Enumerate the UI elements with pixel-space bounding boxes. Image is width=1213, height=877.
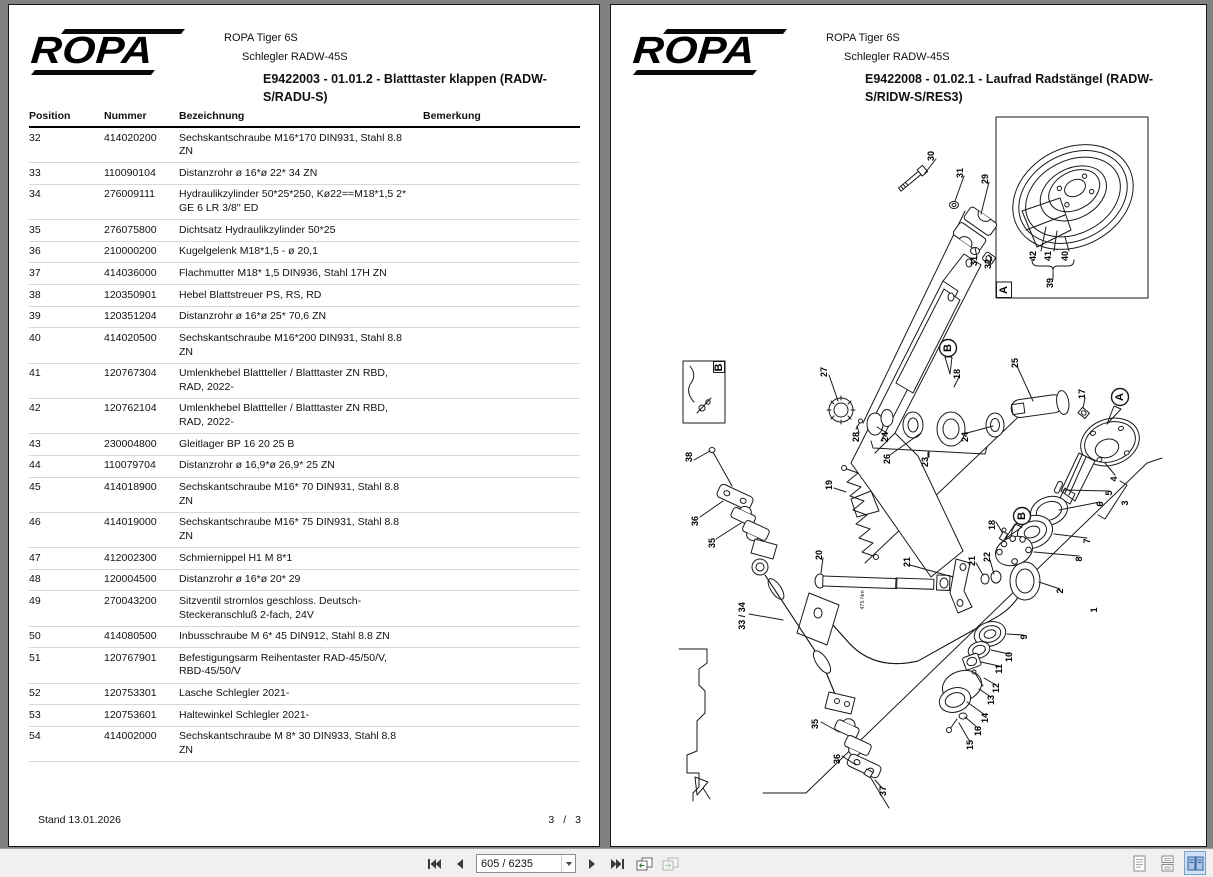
cell-bemerkung [423, 630, 580, 644]
cell-bemerkung [423, 595, 580, 622]
single-page-layout-button[interactable] [1128, 851, 1150, 875]
cell-nummer: 120004500 [104, 573, 179, 587]
table-row: 41 120767304 Umlenkhebel Blattteller / B… [29, 364, 580, 399]
page-current: 3 [548, 814, 554, 826]
cell-bezeichnung: Kugelgelenk M18*1,5 - ø 20,1 [179, 245, 423, 259]
cell-bemerkung [423, 132, 580, 159]
cell-bemerkung [423, 552, 580, 566]
cell-bezeichnung: Gleitlager BP 16 20 25 B [179, 438, 423, 452]
cell-bemerkung [423, 459, 580, 473]
part-callout: 18 [987, 520, 997, 530]
part-callout: 12 [991, 683, 1001, 693]
cell-bemerkung [423, 516, 580, 543]
part-callout: A [998, 286, 1010, 294]
logo-wordmark: ROPA [30, 34, 210, 69]
part-callout: 40 [1060, 251, 1070, 261]
facing-pages-layout-button[interactable] [1184, 851, 1206, 875]
single-page-icon [1133, 855, 1146, 872]
col-bezeichnung: Bezeichnung [179, 110, 423, 122]
part-callout: 11 [994, 664, 1004, 674]
cell-position: 47 [29, 552, 104, 566]
machine-silhouette [679, 649, 710, 801]
spindle-group [991, 407, 1146, 570]
cell-position: 49 [29, 595, 104, 622]
table-row: 45 414018900 Sechskantschraube M16* 70 D… [29, 478, 580, 513]
viewer-toolbar: 605 / 6235 [0, 848, 1213, 877]
page-title: E9422003 - 01.01.2 - Blatttaster klappen… [263, 70, 583, 106]
cell-nummer: 276009111 [104, 188, 179, 215]
page-header: ROPA Tiger 6S Schlegler RADW-45S E942200… [224, 32, 583, 106]
part-callout: 42 [1028, 251, 1038, 261]
cell-position: 44 [29, 459, 104, 473]
cell-bezeichnung: Sechskantschraube M16* 75 DIN931, Stahl … [179, 516, 423, 543]
col-nummer: Nummer [104, 110, 179, 122]
part-callout: 20 [814, 550, 824, 560]
cell-bezeichnung: Befestigungsarm Reihentaster RAD-45/50/V… [179, 652, 423, 679]
cell-bemerkung [423, 310, 580, 324]
col-position: Position [29, 110, 104, 122]
part-callout: 5 [1104, 490, 1114, 495]
page-title: E9422008 - 01.02.1 - Laufrad Radstängel … [865, 70, 1190, 106]
logo-wordmark: ROPA [632, 34, 812, 69]
previous-view-icon [636, 857, 653, 871]
facing-pages-icon [1187, 855, 1204, 872]
cell-bezeichnung: Umlenkhebel Blattteller / Blatttaster ZN… [179, 367, 423, 394]
cell-bezeichnung: Lasche Schlegler 2021- [179, 687, 423, 701]
cell-position: 39 [29, 310, 104, 324]
part-callout: 35 [810, 719, 820, 729]
page-number-value[interactable]: 605 / 6235 [477, 858, 561, 870]
part-callout: 15 [965, 740, 975, 750]
part-callout: 2 [1055, 588, 1065, 593]
page-navigation: 605 / 6235 [424, 850, 680, 877]
cell-position: 35 [29, 224, 104, 238]
part-callout: 23 [920, 457, 930, 467]
part-callout: 6 [1095, 501, 1105, 506]
table-row: 47 412002300 Schmiernippel H1 M 8*1 [29, 548, 580, 570]
part-callout: 33 / 34 [737, 602, 747, 630]
cell-bezeichnung: Hydraulikzylinder 50*25*250, Kø22==M18*1… [179, 188, 423, 215]
col-bemerkung: Bemerkung [423, 110, 580, 122]
cell-nummer: 120753301 [104, 687, 179, 701]
page-number: 3/3 [539, 814, 581, 826]
part-callout: 38 [684, 452, 694, 462]
cell-position: 40 [29, 332, 104, 359]
part-callout: 27 [819, 367, 829, 377]
cell-nummer: 120762104 [104, 402, 179, 429]
part-callout: A [1114, 393, 1126, 401]
cell-nummer: 120351204 [104, 310, 179, 324]
parts-table: Position Nummer Bezeichnung Bemerkung 32… [29, 108, 580, 762]
part-callout: 36 [832, 754, 842, 764]
table-row: 34 276009111 Hydraulikzylinder 50*25*250… [29, 185, 580, 220]
wheel-inset [994, 117, 1151, 298]
last-page-icon [611, 858, 625, 870]
part-callout: 35 [707, 538, 717, 548]
page-separator: / [563, 814, 566, 826]
part-callout: 36 [690, 516, 700, 526]
previous-page-icon [455, 858, 465, 870]
table-row: 33 110090104 Distanzrohr ø 16*ø 22* 34 Z… [29, 163, 580, 185]
header-assembly: Schlegler RADW-45S [844, 51, 1190, 63]
table-row: 36 210000200 Kugelgelenk M18*1,5 - ø 20,… [29, 242, 580, 264]
part-callout: 19 [824, 480, 834, 490]
cell-bezeichnung: Inbusschraube M 6* 45 DIN912, Stahl 8.8 … [179, 630, 423, 644]
cell-bemerkung [423, 573, 580, 587]
cell-bemerkung [423, 438, 580, 452]
pdf-page-left: ROPA ROPA Tiger 6S Schlegler RADW-45S E9… [8, 4, 600, 847]
table-row: 40 414020500 Sechskantschraube M16*200 D… [29, 328, 580, 363]
logo-bar-bottom [633, 70, 757, 75]
cell-bemerkung [423, 332, 580, 359]
cell-position: 48 [29, 573, 104, 587]
next-view-button[interactable] [660, 854, 680, 874]
table-row: 35 276075800 Dichtsatz Hydraulikzylinder… [29, 220, 580, 242]
part-callout: 475 Nm [860, 590, 866, 610]
cell-position: 43 [29, 438, 104, 452]
next-view-icon [662, 857, 679, 871]
cell-position: 53 [29, 709, 104, 723]
cell-nummer: 414002000 [104, 730, 179, 757]
cell-bemerkung [423, 402, 580, 429]
page-total: 3 [575, 814, 581, 826]
cell-position: 52 [29, 687, 104, 701]
previous-page-button[interactable] [450, 854, 470, 874]
part-callout: 30 [926, 151, 936, 161]
part-callout: 10 [1004, 652, 1014, 662]
parts-table-header: Position Nummer Bezeichnung Bemerkung [29, 108, 580, 128]
cell-nummer: 120767304 [104, 367, 179, 394]
first-page-icon [427, 858, 441, 870]
cell-nummer: 110079704 [104, 459, 179, 473]
part-callout: 17 [1077, 389, 1087, 399]
continuous-layout-button[interactable] [1156, 851, 1178, 875]
part-callout: B [942, 344, 954, 352]
cell-bemerkung [423, 167, 580, 181]
cell-bemerkung [423, 367, 580, 394]
page-number-dropdown-button[interactable] [561, 855, 575, 872]
pdf-viewer: ROPA ROPA Tiger 6S Schlegler RADW-45S E9… [0, 0, 1213, 877]
part-callout: 24 [960, 432, 970, 442]
cell-bezeichnung: Distanzrohr ø 16*ø 25* 70,6 ZN [179, 310, 423, 324]
table-row: 44 110079704 Distanzrohr ø 16,9*ø 26,9* … [29, 456, 580, 478]
part-callout: 13 [986, 695, 996, 705]
cell-nummer: 414019000 [104, 516, 179, 543]
seal-cascade [936, 618, 1009, 733]
part-callout: 9 [1019, 634, 1029, 639]
page-layout-controls [1128, 851, 1206, 875]
cell-position: 54 [29, 730, 104, 757]
table-row: 53 120753601 Haltewinkel Schlegler 2021- [29, 705, 580, 727]
cell-bemerkung [423, 709, 580, 723]
page-header: ROPA Tiger 6S Schlegler RADW-45S E942200… [826, 32, 1190, 106]
header-model: ROPA Tiger 6S [224, 32, 583, 44]
table-row: 48 120004500 Distanzrohr ø 16*ø 20* 29 [29, 570, 580, 592]
last-page-button[interactable] [608, 854, 628, 874]
part-callout: B [1016, 512, 1028, 520]
page-number-combobox[interactable]: 605 / 6235 [476, 854, 576, 873]
table-row: 42 120762104 Umlenkhebel Blattteller / B… [29, 399, 580, 434]
previous-view-button[interactable] [634, 854, 654, 874]
part-callout: 28 [851, 432, 861, 442]
cell-bezeichnung: Distanzrohr ø 16*ø 20* 29 [179, 573, 423, 587]
cell-nummer: 210000200 [104, 245, 179, 259]
cell-nummer: 412002300 [104, 552, 179, 566]
cell-bezeichnung: Schmiernippel H1 M 8*1 [179, 552, 423, 566]
cell-bemerkung [423, 687, 580, 701]
cell-nummer: 120767901 [104, 652, 179, 679]
page-footer: Stand 13.01.2026 3/3 [38, 814, 581, 826]
cell-bezeichnung: Flachmutter M18* 1,5 DIN936, Stahl 17H Z… [179, 267, 423, 281]
cell-position: 51 [29, 652, 104, 679]
logo-bar-bottom [31, 70, 155, 75]
cell-bemerkung [423, 652, 580, 679]
cell-bemerkung [423, 188, 580, 215]
part-callout: 21 [967, 556, 977, 566]
header-model: ROPA Tiger 6S [826, 32, 1190, 44]
cell-bemerkung [423, 730, 580, 757]
cell-nummer: 270043200 [104, 595, 179, 622]
chevron-down-icon [566, 862, 572, 866]
pdf-page-right: ROPA ROPA Tiger 6S Schlegler RADW-45S E9… [610, 4, 1207, 847]
table-row: 51 120767901 Befestigungsarm Reihentaste… [29, 648, 580, 683]
part-callout: 14 [980, 713, 990, 723]
cell-bezeichnung: Sitzventil stromlos geschloss. Deutsch-S… [179, 595, 423, 622]
part-callout: 37 [878, 786, 888, 796]
part-callout: 31 [955, 168, 965, 178]
cell-bezeichnung: Dichtsatz Hydraulikzylinder 50*25 [179, 224, 423, 238]
part-callout: 16 [973, 726, 983, 736]
part-callout: 39 [1045, 278, 1055, 288]
table-row: 49 270043200 Sitzventil stromlos geschlo… [29, 591, 580, 626]
cell-nummer: 414080500 [104, 630, 179, 644]
cell-position: 38 [29, 289, 104, 303]
table-row: 43 230004800 Gleitlager BP 16 20 25 B [29, 434, 580, 456]
cell-bezeichnung: Sechskantschraube M 8* 30 DIN933, Stahl … [179, 730, 423, 757]
cell-bezeichnung: Sechskantschraube M16*170 DIN931, Stahl … [179, 132, 423, 159]
part-callout: 31 [969, 256, 979, 266]
cell-bezeichnung: Distanzrohr ø 16,9*ø 26,9* 25 ZN [179, 459, 423, 473]
cell-nummer: 414020500 [104, 332, 179, 359]
cell-bemerkung [423, 245, 580, 259]
cell-bemerkung [423, 267, 580, 281]
continuous-layout-icon [1161, 855, 1174, 872]
cell-position: 42 [29, 402, 104, 429]
cell-position: 33 [29, 167, 104, 181]
table-row: 32 414020200 Sechskantschraube M16*170 D… [29, 128, 580, 163]
part-callout: 26 [882, 454, 892, 464]
cell-nummer: 414020200 [104, 132, 179, 159]
table-row: 37 414036000 Flachmutter M18* 1,5 DIN936… [29, 263, 580, 285]
part-callout: 1 [1089, 607, 1099, 612]
ropa-logo: ROPA [633, 29, 791, 75]
table-row: 39 120351204 Distanzrohr ø 16*ø 25* 70,6… [29, 307, 580, 329]
part-callout: 8 [1074, 556, 1084, 561]
next-page-icon [587, 858, 597, 870]
cell-nummer: 230004800 [104, 438, 179, 452]
revision-date: Stand 13.01.2026 [38, 814, 121, 826]
table-row: 54 414002000 Sechskantschraube M 8* 30 D… [29, 727, 580, 762]
cell-nummer: 120350901 [104, 289, 179, 303]
part-callout: 25 [1010, 358, 1020, 368]
cell-bezeichnung: Sechskantschraube M16* 70 DIN931, Stahl … [179, 481, 423, 508]
cell-bemerkung [423, 289, 580, 303]
table-row: 38 120350901 Hebel Blattstreuer PS, RS, … [29, 285, 580, 307]
table-row: 46 414019000 Sechskantschraube M16* 75 D… [29, 513, 580, 548]
cell-bezeichnung: Hebel Blattstreuer PS, RS, RD [179, 289, 423, 303]
cell-nummer: 120753601 [104, 709, 179, 723]
part-callout: 4 [1109, 476, 1119, 481]
cell-nummer: 110090104 [104, 167, 179, 181]
cell-position: 36 [29, 245, 104, 259]
part-callout: 18 [952, 369, 962, 379]
cell-position: 34 [29, 188, 104, 215]
cell-bezeichnung: Haltewinkel Schlegler 2021- [179, 709, 423, 723]
part-callout: 41 [1043, 251, 1053, 261]
cell-bezeichnung: Umlenkhebel Blattteller / Blatttaster ZN… [179, 402, 423, 429]
cell-position: 32 [29, 132, 104, 159]
cell-bezeichnung: Distanzrohr ø 16*ø 22* 34 ZN [179, 167, 423, 181]
part-callout: B [713, 363, 725, 371]
part-callout: 22 [982, 552, 992, 562]
cell-nummer: 414036000 [104, 267, 179, 281]
first-page-button[interactable] [424, 854, 444, 874]
cell-position: 41 [29, 367, 104, 394]
cell-bezeichnung: Sechskantschraube M16*200 DIN931, Stahl … [179, 332, 423, 359]
parts-table-body: 32 414020200 Sechskantschraube M16*170 D… [29, 128, 580, 762]
part-callout: 21 [902, 557, 912, 567]
cell-position: 37 [29, 267, 104, 281]
part-callout: 7 [1082, 538, 1092, 543]
part-callout: 32 [983, 259, 993, 269]
cell-bemerkung [423, 481, 580, 508]
table-row: 50 414080500 Inbusschraube M 6* 45 DIN91… [29, 627, 580, 649]
exploded-diagram: 3031293132272824262324251819202138363517… [613, 111, 1207, 846]
next-page-button[interactable] [582, 854, 602, 874]
cell-bemerkung [423, 224, 580, 238]
cell-position: 50 [29, 630, 104, 644]
header-assembly: Schlegler RADW-45S [242, 51, 583, 63]
cell-position: 46 [29, 516, 104, 543]
ropa-logo: ROPA [31, 29, 189, 75]
cell-nummer: 414018900 [104, 481, 179, 508]
cell-nummer: 276075800 [104, 224, 179, 238]
cell-position: 45 [29, 481, 104, 508]
part-callout: 24 [880, 432, 890, 442]
part-callout: 29 [980, 174, 990, 184]
part-callout: 3 [1120, 500, 1130, 505]
table-row: 52 120753301 Lasche Schlegler 2021- [29, 684, 580, 706]
